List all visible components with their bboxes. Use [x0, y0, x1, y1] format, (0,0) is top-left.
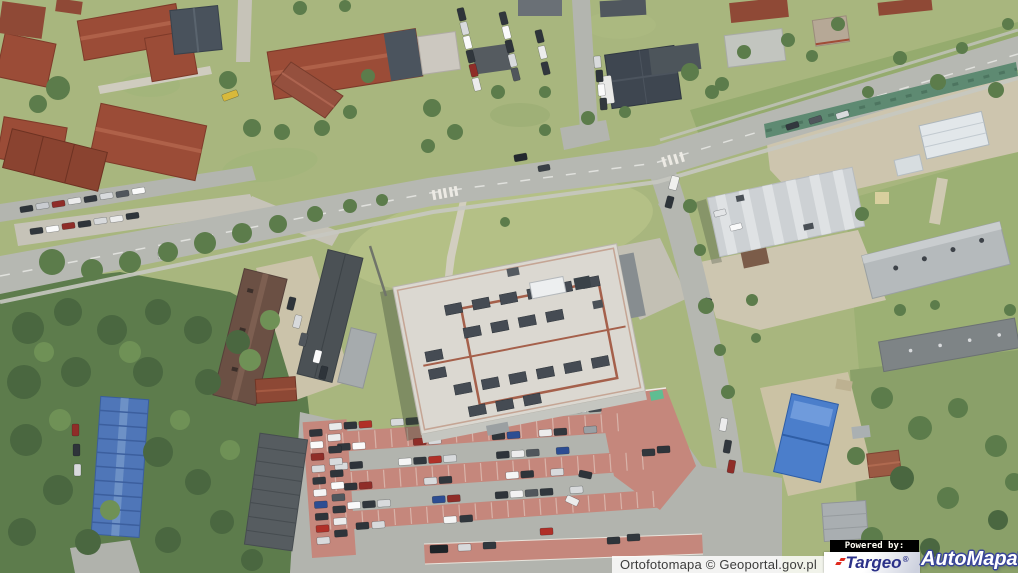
red-roof-small: [255, 377, 297, 404]
automapa-logo[interactable]: AutoMapa ®: [921, 548, 1018, 573]
grey-building: [822, 501, 869, 542]
attribution-text: Ortofotomapa © Geoportal.gov.pl: [620, 557, 817, 572]
targeo-logo[interactable]: Targeo ®: [824, 552, 920, 573]
powered-by-label: Powered by:: [845, 541, 905, 551]
map-viewport[interactable]: Ortofotomapa © Geoportal.gov.pl Powered …: [0, 0, 1018, 573]
targeo-registered: ®: [903, 556, 909, 564]
targeo-name: Targeo: [846, 553, 902, 573]
targeo-logo-mark: [836, 557, 846, 568]
automapa-name: AutoMapa: [921, 548, 1018, 571]
attribution-bar: Ortofotomapa © Geoportal.gov.pl: [612, 556, 825, 573]
blue-roof-building: [91, 396, 149, 537]
powered-by-badge: Powered by:: [830, 540, 919, 552]
aerial-photo: [0, 0, 1018, 573]
